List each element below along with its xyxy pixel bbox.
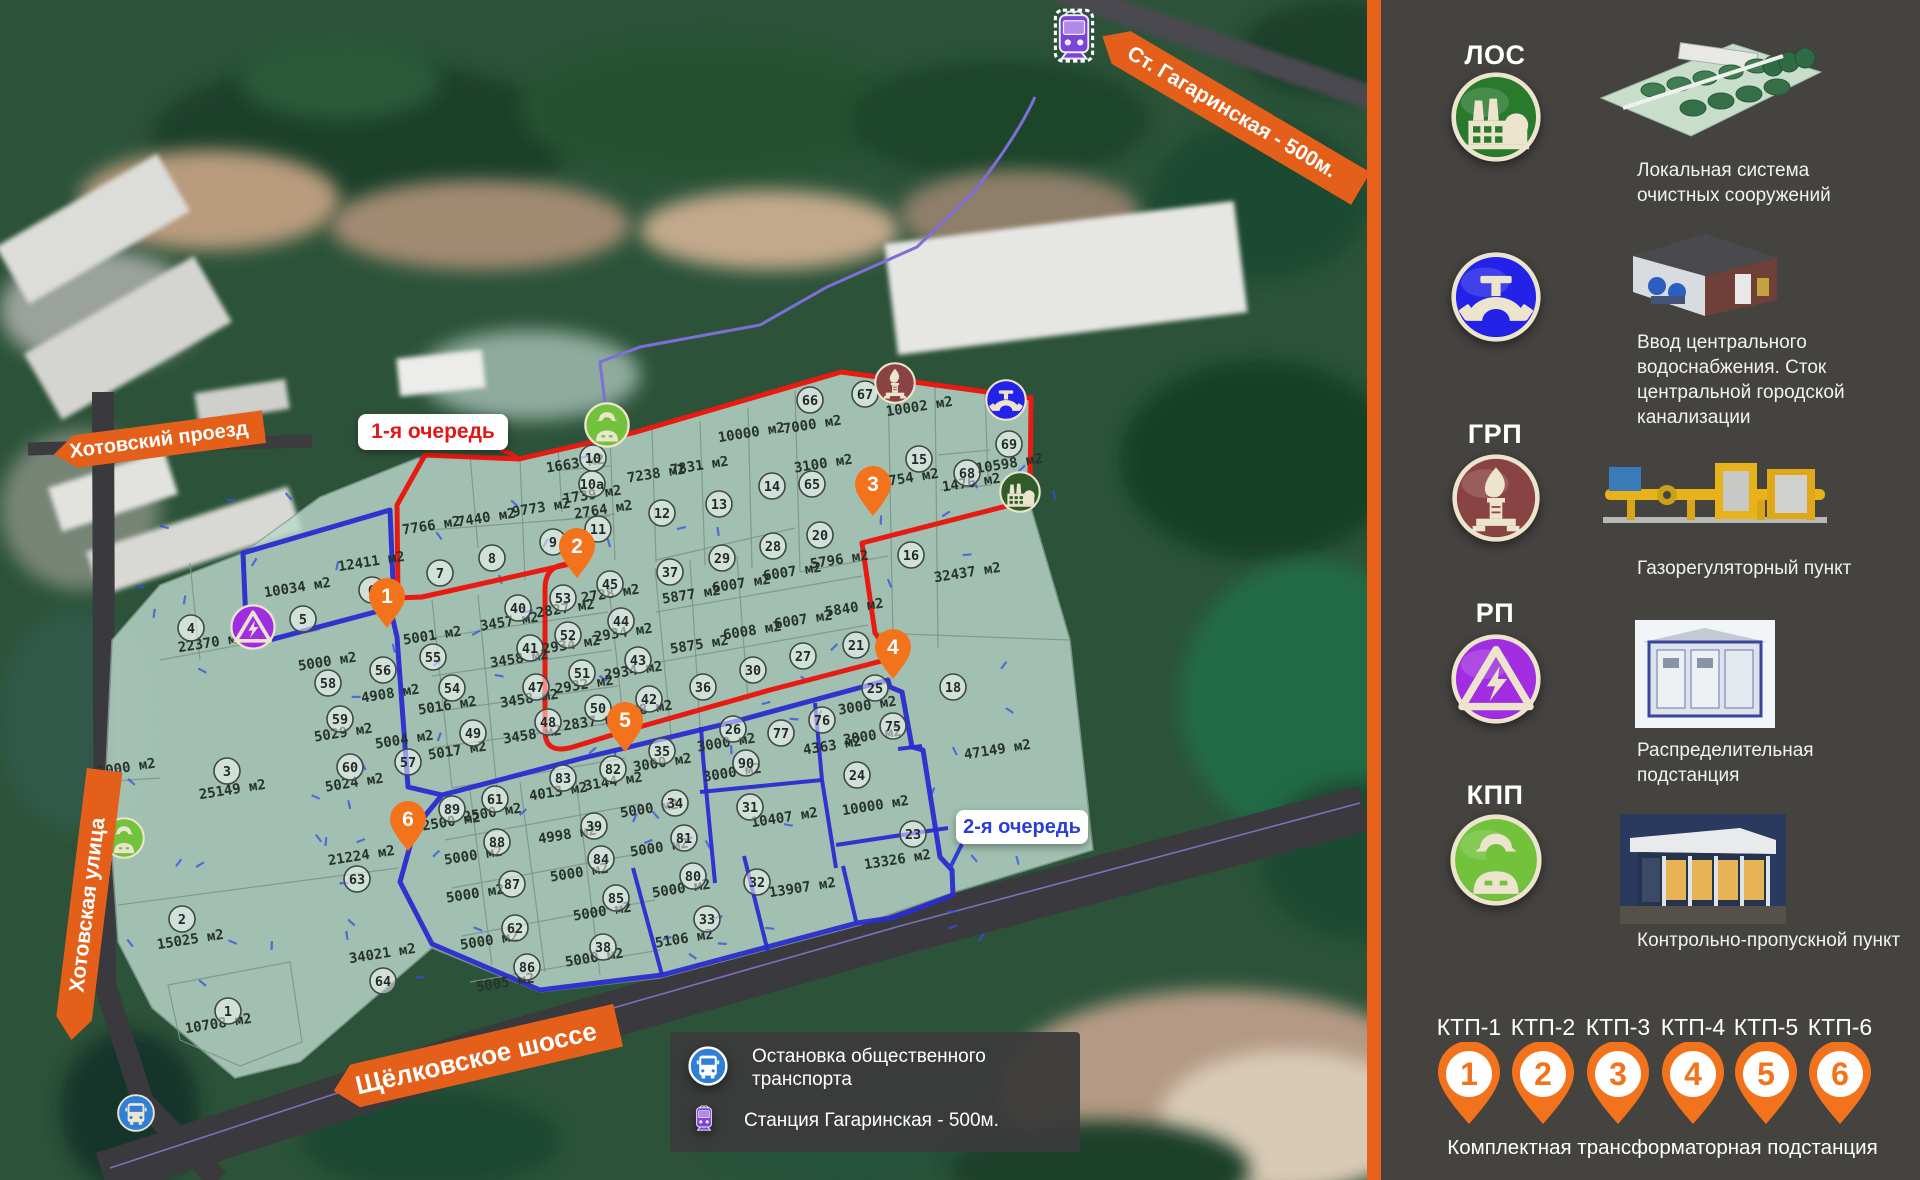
plot-marker: 35 <box>649 738 675 764</box>
svg-text:88: 88 <box>489 835 505 851</box>
plot-marker: 88 <box>484 829 510 855</box>
svg-text:84: 84 <box>593 852 609 868</box>
svg-text:47: 47 <box>528 680 544 696</box>
svg-text:20: 20 <box>812 528 828 544</box>
plot-marker: 77 <box>768 720 794 746</box>
plot-marker: 23 <box>900 821 926 847</box>
svg-text:58: 58 <box>320 676 336 692</box>
svg-text:59: 59 <box>332 712 348 728</box>
svg-text:45: 45 <box>602 577 618 593</box>
plot-marker: 54 <box>439 675 465 701</box>
svg-text:53: 53 <box>555 591 571 607</box>
svg-text:21: 21 <box>848 638 864 654</box>
svg-text:55: 55 <box>425 650 441 666</box>
map-legend: Остановка общественного транспорта Станц… <box>670 1032 1080 1152</box>
ktp-label-1: КТП-1 <box>1432 1014 1506 1041</box>
plot-marker: 62 <box>502 915 528 941</box>
svg-text:32: 32 <box>749 875 765 891</box>
phase1-label: 1-я очередь <box>358 414 508 450</box>
plot-marker: 66 <box>797 387 823 413</box>
worker-icon <box>585 403 628 446</box>
plot-marker: 41 <box>517 635 543 661</box>
svg-text:63: 63 <box>349 872 365 888</box>
plot-marker: 53 <box>550 585 576 611</box>
plot-marker: 40 <box>505 595 531 621</box>
svg-text:10a: 10a <box>580 477 604 493</box>
plot-marker: 87 <box>499 871 525 897</box>
svg-text:75: 75 <box>885 719 901 735</box>
bus-icon <box>118 1095 154 1131</box>
svg-text:11: 11 <box>590 522 606 538</box>
plot-marker: 7 <box>427 560 453 586</box>
plot-marker: 63 <box>344 866 370 892</box>
plot-marker: 21 <box>843 632 869 658</box>
svg-text:89: 89 <box>444 802 460 818</box>
plot-marker: 61 <box>482 786 508 812</box>
plot-marker: 48 <box>535 709 561 735</box>
tram-icon <box>688 1094 720 1147</box>
svg-text:31: 31 <box>742 800 758 816</box>
plot-marker: 49 <box>460 720 486 746</box>
svg-text:1: 1 <box>1460 1056 1478 1092</box>
ktp-label-6: КТП-6 <box>1803 1014 1877 1041</box>
svg-text:69: 69 <box>1001 437 1017 453</box>
plot-marker: 28 <box>760 533 786 559</box>
plot-marker: 10a <box>579 471 605 497</box>
plot-marker: 89 <box>439 796 465 822</box>
svg-text:3: 3 <box>1609 1056 1627 1092</box>
svg-text:10: 10 <box>585 451 601 467</box>
svg-text:6: 6 <box>1831 1056 1849 1092</box>
svg-text:9: 9 <box>549 535 557 551</box>
svg-text:37: 37 <box>662 565 678 581</box>
svg-text:50: 50 <box>590 701 606 717</box>
kpp-image <box>1620 814 1786 929</box>
svg-text:8: 8 <box>488 551 496 567</box>
plot-marker: 82 <box>600 756 626 782</box>
svg-text:64: 64 <box>375 974 391 990</box>
los-image <box>1583 36 1823 145</box>
section-desc-grp: Газорегуляторный пункт <box>1637 556 1897 581</box>
ktp-pin-5[interactable]: 5 <box>1730 1042 1802 1131</box>
ktp-pin-6[interactable]: 6 <box>1804 1042 1876 1131</box>
plot-marker: 20 <box>807 522 833 548</box>
plot-marker: 18 <box>940 674 966 700</box>
ktp-label-5: КТП-5 <box>1729 1014 1803 1041</box>
svg-text:28: 28 <box>765 539 781 555</box>
svg-text:44: 44 <box>613 614 629 630</box>
plot-marker: 29 <box>709 545 735 571</box>
plot-marker: 43 <box>625 647 651 673</box>
gas-flame-icon <box>1451 453 1541 548</box>
svg-text:1: 1 <box>224 1004 232 1020</box>
ktp-pin-3[interactable]: 3 <box>1582 1042 1654 1131</box>
svg-text:3: 3 <box>223 764 231 780</box>
svg-text:34: 34 <box>667 796 683 812</box>
svg-text:16: 16 <box>903 548 919 564</box>
legend-bus-text: Остановка общественного транспорта <box>752 1045 1052 1091</box>
svg-text:76: 76 <box>814 713 830 729</box>
plot-marker: 84 <box>588 846 614 872</box>
plot-marker: 3 <box>214 758 240 784</box>
svg-text:33: 33 <box>699 912 715 928</box>
plot-marker: 81 <box>671 825 697 851</box>
section-desc-los: Локальная система очистных сооружений <box>1637 158 1887 208</box>
svg-text:27: 27 <box>795 649 811 665</box>
section-label-kpp: КПП <box>1440 780 1550 811</box>
svg-text:90: 90 <box>738 756 754 772</box>
svg-text:5: 5 <box>1757 1056 1775 1092</box>
svg-text:87: 87 <box>504 877 520 893</box>
plot-marker: 69 <box>996 431 1022 457</box>
svg-text:77: 77 <box>773 726 789 742</box>
svg-text:49: 49 <box>465 726 481 742</box>
plot-marker: 52 <box>555 622 581 648</box>
svg-text:36: 36 <box>695 680 711 696</box>
svg-text:2: 2 <box>571 535 583 558</box>
svg-text:1: 1 <box>381 585 393 608</box>
plot-marker: 10 <box>580 445 606 471</box>
svg-text:14: 14 <box>764 479 780 495</box>
plot-marker: 57 <box>395 749 421 775</box>
plot-marker: 86 <box>514 954 540 980</box>
ktp-pin-1[interactable]: 1 <box>1433 1042 1505 1131</box>
plot-marker: 27 <box>790 643 816 669</box>
plot-marker: 58 <box>315 670 341 696</box>
plot-marker: 85 <box>603 885 629 911</box>
plot-marker: 68 <box>954 460 980 486</box>
plot-marker: 25 <box>862 675 888 701</box>
svg-text:2: 2 <box>1534 1056 1552 1092</box>
svg-text:3: 3 <box>867 473 879 496</box>
svg-text:41: 41 <box>522 641 538 657</box>
plot-marker: 2 <box>169 906 195 932</box>
svg-text:48: 48 <box>540 715 556 731</box>
plot-marker: 51 <box>569 660 595 686</box>
plot-marker: 34 <box>662 790 688 816</box>
plot-marker: 45 <box>597 571 623 597</box>
svg-text:4: 4 <box>187 621 195 637</box>
plot-marker: 8 <box>479 545 505 571</box>
plot-marker: 42 <box>636 686 662 712</box>
svg-text:43: 43 <box>630 653 646 669</box>
plot-marker: 39 <box>581 813 607 839</box>
plot-marker: 60 <box>337 754 363 780</box>
grp-image <box>1597 453 1833 543</box>
factory-icon <box>1000 472 1039 511</box>
plot-marker: 24 <box>844 762 870 788</box>
plot-marker: 15 <box>906 446 932 472</box>
svg-text:38: 38 <box>595 940 611 956</box>
svg-text:39: 39 <box>586 819 602 835</box>
plot-marker: 12 <box>649 500 675 526</box>
svg-text:40: 40 <box>510 601 526 617</box>
plot-marker: 30 <box>740 657 766 683</box>
svg-text:80: 80 <box>685 869 701 885</box>
legend-sidebar: ЛОС Локальная система очистных сооружени… <box>1381 0 1920 1180</box>
svg-text:35: 35 <box>654 744 670 760</box>
svg-text:4: 4 <box>887 636 899 659</box>
svg-text:13: 13 <box>711 497 727 513</box>
industrial-park-plan: 1663 м21739 м22764 м29773 м27440 м27766 … <box>0 0 1920 1180</box>
electric-hazard-icon <box>1450 633 1542 730</box>
plot-marker: 50 <box>585 695 611 721</box>
ktp-label-3: КТП-3 <box>1581 1014 1655 1041</box>
svg-text:86: 86 <box>519 960 535 976</box>
plot-marker: 44 <box>608 608 634 634</box>
svg-text:6: 6 <box>402 808 414 831</box>
svg-text:15: 15 <box>911 452 927 468</box>
plot-marker: 37 <box>657 559 683 585</box>
plot-marker: 59 <box>327 706 353 732</box>
phase2-text: 2-я очередь <box>963 816 1081 839</box>
section-desc-water: Ввод центрального водоснабжения. Сток це… <box>1637 330 1912 430</box>
plot-marker: 67 <box>852 381 878 407</box>
factory-icon <box>1450 71 1542 168</box>
svg-text:67: 67 <box>857 387 873 403</box>
plot-marker: 65 <box>799 471 825 497</box>
svg-text:30: 30 <box>745 663 761 679</box>
plot-marker: 64 <box>370 968 396 994</box>
plot-marker: 14 <box>759 473 785 499</box>
rp-image <box>1635 620 1775 733</box>
svg-text:82: 82 <box>605 762 621 778</box>
water-tap-icon <box>1450 251 1542 348</box>
phase2-label: 2-я очередь <box>956 810 1088 844</box>
svg-text:60: 60 <box>342 760 358 776</box>
svg-text:61: 61 <box>487 792 503 808</box>
phase1-text: 1-я очередь <box>371 420 495 444</box>
ktp-label-4: КТП-4 <box>1656 1014 1730 1041</box>
plot-marker: 38 <box>590 934 616 960</box>
svg-text:5: 5 <box>299 612 307 628</box>
plot-marker: 56 <box>370 657 396 683</box>
plot-marker: 83 <box>550 765 576 791</box>
svg-text:65: 65 <box>804 477 820 493</box>
svg-text:42: 42 <box>641 692 657 708</box>
plot-marker: 5 <box>290 606 316 632</box>
svg-text:62: 62 <box>507 921 523 937</box>
svg-text:2: 2 <box>178 912 186 928</box>
plot-marker: 16 <box>898 542 924 568</box>
svg-text:81: 81 <box>676 831 692 847</box>
svg-text:12: 12 <box>654 506 670 522</box>
plot-marker: 31 <box>737 794 763 820</box>
section-label-rp: РП <box>1440 598 1550 629</box>
site-plan-svg: 1663 м21739 м22764 м29773 м27440 м27766 … <box>0 0 1367 1180</box>
svg-text:4: 4 <box>1684 1056 1702 1092</box>
svg-text:29: 29 <box>714 551 730 567</box>
bus-icon <box>688 1046 728 1091</box>
svg-text:66: 66 <box>802 393 818 409</box>
plot-marker: 33 <box>694 906 720 932</box>
plot-marker: 55 <box>420 644 446 670</box>
plot-marker: 90 <box>733 750 759 776</box>
ktp-caption: Комплектная трансформаторная подстанция <box>1410 1136 1915 1160</box>
water-image <box>1627 226 1782 324</box>
svg-text:56: 56 <box>375 663 391 679</box>
plot-marker: 32 <box>744 869 770 895</box>
plot-marker: 4 <box>178 615 204 641</box>
map-area[interactable]: 1663 м21739 м22764 м29773 м27440 м27766 … <box>0 0 1367 1180</box>
ktp-pin-4[interactable]: 4 <box>1657 1042 1729 1131</box>
plot-marker: 76 <box>809 707 835 733</box>
svg-text:51: 51 <box>574 666 590 682</box>
section-label-grp: ГРП <box>1440 419 1550 450</box>
plot-marker: 47 <box>523 674 549 700</box>
svg-text:25: 25 <box>867 681 883 697</box>
section-desc-kpp: Контрольно-пропускной пункт <box>1637 928 1912 953</box>
ktp-pin-2[interactable]: 2 <box>1507 1042 1579 1131</box>
svg-text:5: 5 <box>619 709 631 732</box>
plot-marker: 75 <box>880 713 906 739</box>
water-tap-icon <box>986 380 1025 419</box>
svg-text:7: 7 <box>436 566 444 582</box>
legend-tram-text: Станция Гагаринская - 500м. <box>744 1109 999 1132</box>
svg-text:68: 68 <box>959 466 975 482</box>
svg-text:83: 83 <box>555 771 571 787</box>
svg-text:52: 52 <box>560 628 576 644</box>
plot-marker: 26 <box>720 716 746 742</box>
svg-text:26: 26 <box>725 722 741 738</box>
svg-text:18: 18 <box>945 680 961 696</box>
orange-divider <box>1367 0 1381 1180</box>
svg-text:23: 23 <box>905 827 921 843</box>
plot-marker: 36 <box>690 674 716 700</box>
svg-text:85: 85 <box>608 891 624 907</box>
plot-marker: 80 <box>680 863 706 889</box>
plot-marker: 1 <box>215 998 241 1024</box>
plot-marker: 13 <box>706 491 732 517</box>
gas-flame-icon <box>875 363 914 402</box>
section-desc-rp: Распределительная подстанция <box>1637 738 1897 788</box>
svg-text:24: 24 <box>849 768 865 784</box>
worker-icon <box>1449 813 1543 912</box>
electric-hazard-icon <box>231 605 274 648</box>
svg-text:54: 54 <box>444 681 460 697</box>
section-label-los: ЛОС <box>1440 40 1550 71</box>
svg-text:57: 57 <box>400 755 416 771</box>
ktp-label-2: КТП-2 <box>1506 1014 1580 1041</box>
